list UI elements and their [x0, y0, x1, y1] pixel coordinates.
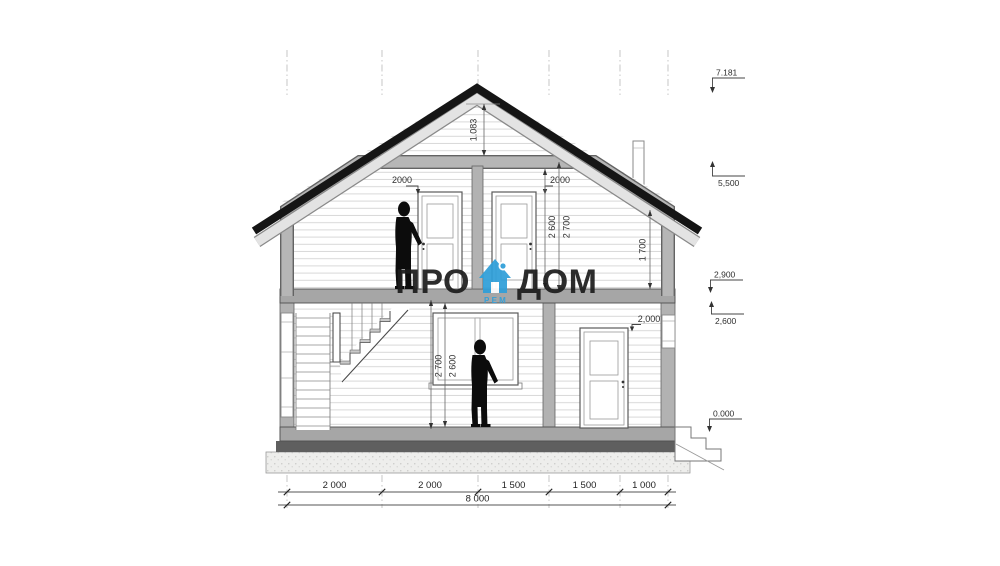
- elevation-ridge-label: 7.181: [716, 68, 738, 78]
- segment-1-label: 2 000: [323, 480, 347, 491]
- floor2-clear-label: 2 600: [547, 216, 557, 239]
- wall-2f-divider: [472, 166, 483, 289]
- ground-floor-slab: [280, 427, 675, 441]
- watermark-word-right: ДОМ: [517, 263, 598, 301]
- overall-width-label: 8 000: [466, 494, 490, 505]
- wall-interior: [543, 303, 555, 427]
- segment-4-label: 1 500: [573, 480, 597, 491]
- elevation-second-floor-label: 2,900: [714, 270, 736, 280]
- window-right-wall: [662, 315, 675, 348]
- blueprint-canvas: 1.083 2000 2000 2,000 2 600 2 700 1 700: [0, 0, 1000, 566]
- foundation: [266, 441, 690, 473]
- knee-wall-label: 1 700: [638, 239, 648, 262]
- segment-5-label: 1 000: [632, 480, 656, 491]
- watermark: ПРО ДОМ РЕМ: [395, 259, 597, 305]
- door-1f-right: [580, 328, 628, 428]
- watermark-word-left: ПРО: [395, 263, 470, 301]
- door-1f-label: 2,000: [638, 314, 661, 324]
- elevation-first-ceiling-label: 2,600: [715, 316, 737, 326]
- elevation-ground-label: 0.000: [713, 409, 735, 419]
- interfloor-slab: [280, 289, 675, 303]
- watermark-sub: РЕМ: [484, 296, 508, 305]
- door-2f-right-label: 2000: [550, 175, 570, 185]
- floor2-structural-label: 2 700: [562, 216, 572, 239]
- door-2f-left-label: 2000: [392, 175, 412, 185]
- segment-2-label: 2 000: [418, 480, 442, 491]
- floor1-structural-label: 2 700: [434, 355, 444, 378]
- floor1-clear-label: 2 600: [448, 355, 458, 378]
- house-section-drawing: 1.083 2000 2000 2,000 2 600 2 700 1 700: [0, 0, 1000, 566]
- segment-3-label: 1 500: [502, 480, 526, 491]
- elevation-ceiling-label: 5,500: [718, 178, 740, 188]
- stair-newel-post: [333, 313, 340, 362]
- window-stair-left-wall: [281, 313, 293, 417]
- ridge-height-label: 1.083: [469, 119, 479, 142]
